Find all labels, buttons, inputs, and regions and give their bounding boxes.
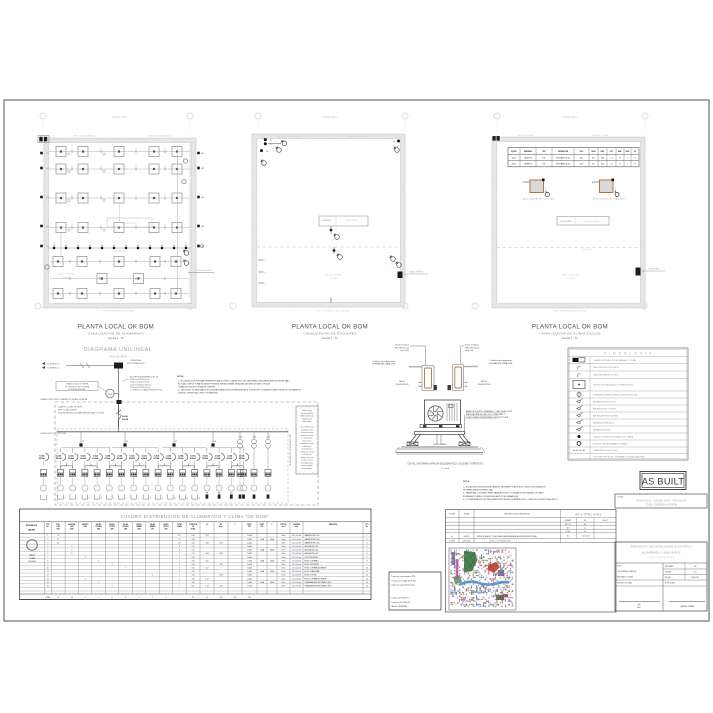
svg-text:6/10kA: 6/10kA <box>80 457 86 460</box>
svg-text:1.- EN LA EJECUCION DE ESTA OB: 1.- EN LA EJECUCION DE ESTA OBRA NO SE D… <box>463 486 546 489</box>
svg-text:ULT.REV: ULT.REV <box>449 540 455 542</box>
svg-text:A4: A4 <box>202 225 204 228</box>
svg-text:0,05: 0,05 <box>192 564 195 566</box>
svg-text:CAJA GRAL.: CAJA GRAL. <box>130 359 142 362</box>
svg-text:S / Clase: S / Clase <box>441 468 450 470</box>
svg-text:9: 9 <box>47 564 48 566</box>
svg-text:L3: L3 <box>47 197 49 199</box>
svg-text:Longitud: 13°41'26.43": Longitud: 13°41'26.43" <box>392 601 411 604</box>
svg-text:CAJA REG.: CAJA REG. <box>322 219 332 222</box>
svg-text:1x25 mm2 RZ1-K Neutro: 1x25 mm2 RZ1-K Neutro <box>130 383 151 386</box>
svg-text:UE-02 24.000 BTU/hr. Tipo cass: UE-02 24.000 BTU/hr. Tipo cassette <box>593 198 626 201</box>
svg-text:RED DE ALUMBRADO: RED DE ALUMBRADO <box>149 135 172 138</box>
svg-text:EQUIPO: EQUIPO <box>511 151 517 153</box>
svg-text:SALA DE VENTA: SALA DE VENTA <box>325 274 342 277</box>
svg-text:HUBBE: HUBBE <box>136 526 141 528</box>
svg-text:6: 6 <box>367 553 368 555</box>
svg-text:VOLT.: VOLT. <box>580 151 585 153</box>
svg-text:10: 10 <box>57 539 59 541</box>
svg-text:1x25 mm2 RZ1-K Tierra: 1x25 mm2 RZ1-K Tierra <box>130 386 151 389</box>
svg-text:11: 11 <box>47 571 49 573</box>
svg-text:ULT REV: ULT REV <box>449 514 456 516</box>
svg-text:1: 1 <box>179 586 180 588</box>
svg-text:s: s <box>265 272 266 274</box>
svg-text:1x2.5,1x2.5mm: 1x2.5,1x2.5mm <box>292 557 302 559</box>
svg-text:1x2.5,1x2.5mm: 1x2.5,1x2.5mm <box>292 539 302 541</box>
svg-text:6/10kA: 6/10kA <box>190 457 196 460</box>
svg-text:1: 1 <box>367 535 368 537</box>
svg-text:kWh: kWh <box>108 394 112 396</box>
svg-text:Cañerias de refrigeracion: Cañerias de refrigeracion <box>373 360 395 363</box>
svg-text:3,39: 3,39 <box>219 542 222 544</box>
svg-text:14.000 BTU/h: 14.000 BTU/h <box>478 384 492 386</box>
svg-text:12: 12 <box>366 575 368 577</box>
svg-text:ROTULO LETRERO EXTERIOR: ROTULO LETRERO EXTERIOR <box>305 578 328 580</box>
svg-text:CAJON INTERRUPTOR G/T.B: CAJON INTERRUPTOR G/T.B <box>593 374 620 377</box>
svg-text:UE-01 24.000 BTU/hr. Tipo cass: UE-01 24.000 BTU/hr. Tipo cassette <box>523 198 556 201</box>
svg-text:Buses metalica: Buses metalica <box>465 344 479 347</box>
svg-text:8: 8 <box>47 560 48 562</box>
svg-text:3: 3 <box>71 553 72 555</box>
svg-text:6/10kA: 6/10kA <box>166 457 172 460</box>
svg-text:RED DE ENCHUFES: RED DE ENCHUFES <box>348 136 369 138</box>
svg-text:RED DE CLIMA: RED DE CLIMA <box>517 134 533 137</box>
svg-text:TERMOSTATO: TERMOSTATO <box>560 220 573 223</box>
svg-text:s: s <box>334 299 335 301</box>
svg-text:1,05: 1,05 <box>205 560 208 562</box>
svg-text:6: 6 <box>47 553 48 555</box>
svg-text:INV: INV <box>543 157 545 159</box>
svg-text:CAJA DE CONEXION CERRADA TIPO: CAJA DE CONEXION CERRADA TIPO CHAPA <box>593 435 634 438</box>
svg-text:850: 850 <box>592 164 595 166</box>
svg-text:17,8: 17,8 <box>248 597 251 599</box>
svg-text:2,1: 2,1 <box>611 157 613 159</box>
svg-text:Ubicacion georreferenciada: Ubicacion georreferenciada <box>392 584 416 587</box>
svg-text:1: 1 <box>179 560 180 562</box>
svg-text:L2: L2 <box>270 144 272 146</box>
svg-text:SE DEBEN HACER SOBRE LOSA.: SE DEBEN HACER SOBRE LOSA. <box>463 489 493 492</box>
svg-text:11: 11 <box>186 498 188 500</box>
svg-text:10: 10 <box>47 568 49 570</box>
svg-text:NOTA: NOTA <box>463 480 469 483</box>
svg-text:10: 10 <box>179 542 181 544</box>
svg-text:2: 2 <box>398 146 399 148</box>
svg-text:6/10kA: 6/10kA <box>129 457 135 460</box>
svg-text:1x2.5,1x2.5mm: 1x2.5,1x2.5mm <box>292 564 302 566</box>
svg-text:04/05/22: 04/05/22 <box>463 536 469 538</box>
svg-text:1: 1 <box>98 582 99 584</box>
svg-text:de las indicadas.: de las indicadas. <box>301 468 313 470</box>
svg-text:1x2.5,1x2.5mm: 1x2.5,1x2.5mm <box>292 582 302 584</box>
svg-text:0,12: 0,12 <box>192 546 195 548</box>
svg-text:DESCRIPCION DE LA REVISION: DESCRIPCION DE LA REVISION <box>504 513 530 516</box>
svg-text:0,45: 0,45 <box>192 539 195 541</box>
svg-text:del uso de la: del uso de la <box>303 440 312 442</box>
svg-text:F: F <box>272 524 273 526</box>
svg-text:6/10kA: 6/10kA <box>39 457 45 460</box>
svg-text:1x2.5,1x2.5mm: 1x2.5,1x2.5mm <box>292 535 302 537</box>
svg-text:1x10kVA SO-4: 1x10kVA SO-4 <box>47 367 59 370</box>
svg-text:1: 1 <box>615 188 616 190</box>
svg-text:obra civil.: obra civil. <box>465 350 474 352</box>
svg-text:6/10kA: 6/10kA <box>105 457 111 460</box>
svg-text:CUADRO DISTRIBUCION DE ALUM: CUADRO DISTRIBUCION DE ALUMBRADO Y CLIMA… <box>121 514 270 519</box>
svg-text:7: 7 <box>367 557 368 559</box>
svg-text:CANALIZACION DE ENCHUFES: CANALIZACION DE ENCHUFES <box>303 331 356 335</box>
svg-text:2: 2 <box>136 166 137 168</box>
svg-text:Nv. P: Nv. P <box>566 527 569 529</box>
svg-text:REF. SUPERMERCADO ACANIA: REF. SUPERMERCADO ACANIA <box>554 310 587 313</box>
svg-text:6/10kA: 6/10kA <box>227 457 233 460</box>
svg-text:0,12: 0,12 <box>192 550 195 552</box>
svg-text:5: 5 <box>47 550 48 552</box>
svg-text:9: 9 <box>367 564 368 566</box>
svg-text:10: 10 <box>366 568 368 570</box>
svg-text:3: 3 <box>71 550 72 552</box>
svg-text:0,05: 0,05 <box>192 586 195 588</box>
svg-text:ARRANQUE PANTALLA: ARRANQUE PANTALLA <box>593 421 614 424</box>
svg-text:TECTROL/L por: TECTROL/L por <box>465 347 480 349</box>
svg-text:+ CONDUCTO OBRA PROVISTO XXL: + CONDUCTO OBRA PROVISTO XXL <box>130 389 163 392</box>
svg-text:Escala 1 : 50: Escala 1 : 50 <box>108 336 124 340</box>
svg-text:CENTRO CERTIFICADO POR CONTRAT: CENTRO CERTIFICADO POR CONTRATISTA. <box>178 392 218 395</box>
svg-text:3: 3 <box>71 546 72 548</box>
svg-text:0,12: 0,12 <box>192 553 195 555</box>
svg-text:el uso a seguida: el uso a seguida <box>302 465 313 467</box>
svg-text:REF. SUPERMERCADO ACANIA: REF. SUPERMERCADO ACANIA <box>317 310 350 313</box>
svg-text:3,39: 3,39 <box>219 564 222 566</box>
svg-text:6/10kA: 6/10kA <box>141 457 147 460</box>
svg-text:99: 99 <box>192 597 194 599</box>
svg-text:6/10kA: 6/10kA <box>202 457 208 460</box>
svg-text:1x2.5,1x2.5mm: 1x2.5,1x2.5mm <box>292 568 302 570</box>
svg-text:LOCAL COMERCIAL OK BOM: LOCAL COMERCIAL OK BOM <box>645 504 677 507</box>
svg-text:3: 3 <box>179 550 180 552</box>
svg-text:220V: 220V <box>580 164 583 166</box>
svg-text:L4: L4 <box>393 141 395 143</box>
svg-text:LUMIN.: LUMIN. <box>177 526 183 528</box>
svg-text:PASEO MAL: PASEO MAL <box>323 115 338 119</box>
svg-text:DIAGRAMA UNILINEAL: DIAGRAMA UNILINEAL <box>84 347 153 353</box>
svg-text:1x2.5,1x2.5mm: 1x2.5,1x2.5mm <box>292 586 302 588</box>
svg-text:3,39: 3,39 <box>219 586 222 588</box>
svg-text:Latitud: 37°58'48.78": Latitud: 37°58'48.78" <box>392 597 410 600</box>
svg-text:PLANTA LOCAL OK BOM: PLANTA LOCAL OK BOM <box>532 324 608 331</box>
svg-text:1: 1 <box>179 571 180 573</box>
svg-text:2: 2 <box>136 148 137 150</box>
svg-text:DESCRIPCION: DESCRIPCION <box>558 151 568 153</box>
svg-text:RED DE ENCHUFES: RED DE ENCHUFES <box>278 136 299 138</box>
svg-text:ESC. 1:50: ESC. 1:50 <box>565 524 572 526</box>
svg-text:0,05: 0,05 <box>192 568 195 570</box>
svg-text:2: 2 <box>136 195 137 197</box>
svg-text:ALMACEN: ALMACEN <box>582 248 592 251</box>
svg-text:ESPECIALISTA DE CALCULO CONFOR: ESPECIALISTA DE CALCULO CONFORME Y <box>466 413 506 416</box>
svg-text:13: 13 <box>366 578 368 580</box>
svg-text:0,05: 0,05 <box>192 557 195 559</box>
svg-text:UE-02: UE-02 <box>512 164 516 166</box>
svg-text:L2: L2 <box>47 168 49 170</box>
svg-text:PASEO MAL: PASEO MAL <box>113 115 128 119</box>
svg-text:2: 2 <box>101 224 102 226</box>
svg-text:2,27: 2,27 <box>205 568 208 570</box>
svg-text:10: 10 <box>57 535 59 537</box>
svg-text:ROTULO EXTERIOR: ROTULO EXTERIOR <box>305 564 320 566</box>
svg-text:1: 1 <box>98 597 99 599</box>
svg-text:EL DUAL COMPLE TOMA INSTALAR P: EL DUAL COMPLE TOMA INSTALAR PUESTA A TI… <box>178 383 271 386</box>
svg-text:24: 24 <box>71 597 73 599</box>
svg-text:PLANTA LOCAL OK BOM: PLANTA LOCAL OK BOM <box>78 324 154 331</box>
svg-text:modificacion y uso: modificacion y uso <box>301 457 314 459</box>
svg-text:s: s <box>265 283 266 285</box>
svg-text:de modificaciones: de modificaciones <box>301 462 313 464</box>
svg-text:CLIMA: CLIMA <box>29 557 35 560</box>
svg-text:FRIG.: FRIG. <box>601 151 605 153</box>
svg-text:10: 10 <box>57 542 59 544</box>
svg-text:5: 5 <box>112 597 113 599</box>
svg-text:3: 3 <box>367 542 368 544</box>
svg-text:P.A1.FA.3C.AL - V.S1A3B, D1-E1: P.A1.FA.3C.AL - V.S1A3B, D1-E1 - T.03.1-… <box>636 500 686 503</box>
svg-text:2: 2 <box>72 148 73 150</box>
svg-text:S I M B O L O G I A: S I M B O L O G I A <box>604 352 652 356</box>
svg-text:1: 1 <box>179 575 180 577</box>
svg-text:OTROS: OTROS <box>163 526 168 528</box>
svg-text:FORRAR EN OBRA CIVIL: FORRAR EN OBRA CIVIL <box>372 363 396 366</box>
svg-text:Altitud: TERMINAL: Altitud: TERMINAL <box>392 605 408 608</box>
svg-text:10: 10 <box>174 498 176 500</box>
svg-text:1x2.5,1x2.5mm: 1x2.5,1x2.5mm <box>292 553 302 555</box>
svg-text:1: 1 <box>85 557 86 559</box>
svg-text:1: 1 <box>546 188 547 190</box>
svg-text:16,8: 16,8 <box>219 597 222 599</box>
svg-text:S/E: S/E <box>584 524 586 526</box>
svg-text:TIENDA: TIENDA <box>566 277 574 280</box>
svg-text:ARRANQUE DE CONTROL: ARRANQUE DE CONTROL <box>593 407 617 410</box>
svg-text:3: 3 <box>338 251 339 253</box>
svg-text:9,5: 9,5 <box>619 164 621 166</box>
svg-text:UE-01: UE-01 <box>399 381 406 383</box>
svg-text:15: 15 <box>47 586 49 588</box>
svg-text:9,5: 9,5 <box>619 157 621 159</box>
svg-text:0,05: 0,05 <box>192 578 195 580</box>
svg-text:CANALIZACION DE ALUMBRADO: CANALIZACION DE ALUMBRADO <box>88 331 144 335</box>
svg-text:ALMACEN: ALMACEN <box>115 250 125 253</box>
svg-text:2: 2 <box>72 195 73 197</box>
svg-text:mm2: mm2 <box>295 526 299 528</box>
svg-text:1: 1 <box>179 564 180 566</box>
svg-text:2: 2 <box>139 597 140 599</box>
svg-text:1: 1 <box>336 230 337 232</box>
svg-text:CAJA GL LOCAL OK BOM: CAJA GL LOCAL OK BOM <box>58 406 82 409</box>
svg-text:11: 11 <box>366 571 368 573</box>
svg-text:4: 4 <box>47 546 48 548</box>
svg-text:UE-01: UE-01 <box>512 157 516 159</box>
svg-text:6/10kA: 6/10kA <box>68 457 74 460</box>
svg-text:6/10kA: 6/10kA <box>153 457 159 460</box>
svg-text:NOTA:: NOTA: <box>177 375 184 378</box>
svg-text:REF. TOTAL 40/4787: REF. TOTAL 40/4787 <box>58 409 78 412</box>
svg-text:TERMOSTATO: TERMOSTATO <box>648 268 660 271</box>
svg-text:6/10kA: 6/10kA <box>117 457 123 460</box>
svg-text:1x2.5,1x2.5mm: 1x2.5,1x2.5mm <box>292 550 302 552</box>
svg-text:6/10kA: 6/10kA <box>92 457 98 460</box>
svg-text:RED DE CLIMA: RED DE CLIMA <box>592 134 608 137</box>
svg-text:3,39: 3,39 <box>219 553 222 555</box>
svg-text:Nº DE SALTERIOS LED - TERMINAD: Nº DE SALTERIOS LED - TERMINADOS DE ADOS… <box>593 456 645 459</box>
svg-text:BOCA SOCKET ALUMBRADO NORMAL: BOCA SOCKET ALUMBRADO NORMAL <box>593 442 628 445</box>
svg-text:s: s <box>262 156 263 158</box>
svg-text:EMERG: EMERG <box>150 526 156 528</box>
svg-text:1.- EL DETALLE DE PUESTA A TI: 1.- EL DETALLE DE PUESTA A TIERRA MOSTRA… <box>178 380 291 383</box>
svg-text:8: 8 <box>367 560 368 562</box>
svg-text:CON EL DIAGRAMA UNIFILAR ESQUE: CON EL DIAGRAMA UNIFILAR ESQUEMATICO CAL… <box>407 463 483 466</box>
svg-text:14: 14 <box>366 582 368 584</box>
svg-text:3: 3 <box>47 542 48 544</box>
svg-text:2: 2 <box>165 195 166 197</box>
svg-text:TOMAS DEL EQUIPO ROTANTE VIGEN: TOMAS DEL EQUIPO ROTANTE VIGENTE. <box>178 386 216 389</box>
svg-text:7: 7 <box>47 557 48 559</box>
svg-text:ROZAMIENTO LARGO ORDEN INSULAR: ROZAMIENTO LARGO ORDEN INSULAR POR EL EM… <box>463 495 519 498</box>
svg-text:220V: 220V <box>580 157 583 159</box>
svg-text:A1: A1 <box>202 152 204 155</box>
svg-text:1/1: 1/1 <box>584 531 586 533</box>
svg-text:CUADRO DISTRIBUCION ALUMBRADO: CUADRO DISTRIBUCION ALUMBRADO Y CLIMA <box>593 359 636 362</box>
svg-text:E.P.S.: E.P.S. <box>617 566 622 568</box>
svg-text:CAJON INTERRUPTOR N/T.E: CAJON INTERRUPTOR N/T.E <box>593 366 619 369</box>
svg-text:HOMOLOGACION EMPRESA CONSTRUCT: HOMOLOGACION EMPRESA CONSTRUCTORA <box>466 416 509 419</box>
svg-text:L3: L3 <box>266 151 268 153</box>
svg-text:1x10kVA SO-4: 1x10kVA SO-4 <box>47 363 59 366</box>
svg-text:TIENDA: TIENDA <box>62 276 70 279</box>
svg-text:4x63A: 4x63A <box>122 415 128 418</box>
svg-text:2: 2 <box>125 597 126 599</box>
svg-text:1: 1 <box>152 597 153 599</box>
svg-text:2: 2 <box>72 166 73 168</box>
svg-text:2.- PARA FINAL LOS DEBE TENER: 2.- PARA FINAL LOS DEBE TENER HAGA-EN PI… <box>463 492 545 495</box>
svg-text:1x2.5,1x2.5mm: 1x2.5,1x2.5mm <box>292 560 302 562</box>
svg-text:1: 1 <box>112 564 113 566</box>
svg-text:0,05: 0,05 <box>192 571 195 573</box>
svg-text:7: 7 <box>138 498 139 500</box>
svg-text:3: 3 <box>179 546 180 548</box>
svg-text:1: 1 <box>112 586 113 588</box>
svg-text:0,05: 0,05 <box>192 560 195 562</box>
svg-text:14: 14 <box>47 582 49 584</box>
svg-text:L1: L1 <box>47 153 49 155</box>
svg-text:ROTULO LETRERO: ROTULO LETRERO <box>305 560 320 562</box>
svg-text:3.- LOS MATERIALES QUE REQUIER: 3.- LOS MATERIALES QUE REQUIEREN CERTIFI… <box>463 498 558 501</box>
svg-text:TECTROL/L por: TECTROL/L por <box>395 347 410 349</box>
svg-text:PROYECTO REAL: PROYECTO REAL <box>617 582 632 585</box>
svg-text:1: 1 <box>179 568 180 570</box>
svg-text:ARRANQUE DOBLE: ARRANQUE DOBLE <box>593 428 611 431</box>
svg-text:1: 1 <box>47 535 48 537</box>
svg-text:1: 1 <box>152 575 153 577</box>
svg-text:2: 2 <box>72 224 73 226</box>
svg-text:SALA DE VENTA: SALA DE VENTA <box>58 273 75 276</box>
svg-text:PHIL.: PHIL. <box>56 524 60 526</box>
svg-text:6/10kA: 6/10kA <box>178 457 184 460</box>
svg-text:2,48: 2,48 <box>205 542 208 544</box>
svg-text:LAMINA / FIRMA: LAMINA / FIRMA <box>680 605 694 608</box>
svg-text:Escala 1 : 50: Escala 1 : 50 <box>322 336 338 340</box>
svg-text:ARRANQUE DE ESCALERA: ARRANQUE DE ESCALERA <box>593 414 618 417</box>
svg-text:6/10kA: 6/10kA <box>214 457 220 460</box>
svg-text:1x2.5,1x2.5mm: 1x2.5,1x2.5mm <box>292 575 302 577</box>
svg-text:13: 13 <box>47 578 49 580</box>
svg-text:18,6: 18,6 <box>233 597 236 599</box>
svg-text:2: 2 <box>47 539 48 541</box>
svg-text:1:50: 1:50 <box>693 572 696 574</box>
svg-text:PROT.: PROT. <box>260 524 265 526</box>
svg-text:2: 2 <box>165 148 166 150</box>
svg-text:REVISADO: P.DIAZ: REVISADO: P.DIAZ <box>617 576 634 579</box>
svg-text:L4: L4 <box>47 226 49 228</box>
svg-text:TRAMO A CALLE A TIERRA: TRAMO A CALLE A TIERRA <box>66 383 90 386</box>
svg-text:32-1-IPEL-E01: 32-1-IPEL-E01 <box>575 511 602 516</box>
svg-text:CTO.: CTO. <box>365 524 369 526</box>
svg-text:0,05: 0,05 <box>192 575 195 577</box>
svg-text:1x2.5,1x2.5mm: 1x2.5,1x2.5mm <box>292 546 302 548</box>
svg-text:CONTROL REMOTO: CONTROL REMOTO <box>583 221 601 223</box>
svg-text:PROYECTO DE INSTALACION ELECTR: PROYECTO DE INSTALACION ELECTRICA <box>631 545 691 549</box>
svg-text:L1: L1 <box>270 140 272 142</box>
svg-text:SALA DE VENTA: SALA DE VENTA <box>562 274 579 277</box>
svg-text:OCA OK BOM: OCA OK BOM <box>109 355 128 359</box>
svg-text:POTENCIA GWh T25 AMPLIACION WA: POTENCIA GWh T25 AMPLIACION WALL (T5,5kV… <box>58 412 104 415</box>
svg-text:2: 2 <box>101 166 102 168</box>
svg-text:1x2.5,1x2.5mm: 1x2.5,1x2.5mm <box>292 571 302 573</box>
svg-text:4: 4 <box>85 597 86 599</box>
svg-text:BASE DE EQUIPOS DISEÑADO Y CA: BASE DE EQUIPOS DISEÑADO Y CALCULADO POR <box>466 410 513 413</box>
svg-text:TOMACORRIENTE: TOMACORRIENTE <box>409 271 425 274</box>
svg-text:s: s <box>265 260 266 262</box>
svg-text:1,81: 1,81 <box>205 535 208 537</box>
svg-text:6/10kA: 6/10kA <box>56 457 62 460</box>
svg-text:04.05.2022: 04.05.2022 <box>463 540 471 542</box>
svg-text:BARRA REPARTO COLECTORA: BARRA REPARTO COLECTORA <box>41 432 67 435</box>
svg-text:1: 1 <box>179 582 180 584</box>
svg-text:2,1: 2,1 <box>611 164 613 166</box>
svg-text:Proyeccion Google Earth S/e.: Proyeccion Google Earth S/e. <box>392 579 417 582</box>
svg-text:PROT.: PROT. <box>247 524 252 526</box>
svg-text:TIENDA: TIENDA <box>329 277 337 280</box>
svg-text:2: 2 <box>333 240 334 242</box>
svg-text:PASEO MAL: PASEO MAL <box>563 115 578 119</box>
svg-text:2: 2 <box>165 166 166 168</box>
svg-text:1x2.5,1x2.5mm: 1x2.5,1x2.5mm <box>292 542 302 544</box>
svg-text:5: 5 <box>367 550 368 552</box>
svg-text:CANALIZACION EMT 20mm: CANALIZACION EMT 20mm <box>593 449 618 452</box>
svg-text:10: 10 <box>179 535 181 537</box>
svg-text:A TIERRA GENERAL: A TIERRA GENERAL <box>68 388 85 391</box>
svg-text:UE-02: UE-02 <box>481 381 488 383</box>
svg-text:Buses metalica: Buses metalica <box>395 344 409 347</box>
svg-text:Datos de coordenadas UTM: Datos de coordenadas UTM <box>392 575 416 578</box>
svg-text:6: 6 <box>126 498 127 500</box>
svg-text:24.000 BTU/h: 24.000 BTU/h <box>396 384 410 386</box>
svg-text:1: 1 <box>179 578 180 580</box>
svg-text:Pliego Tecnico: Pliego Tecnico <box>302 410 312 412</box>
svg-text:PLANTA LOCAL OK BOM: PLANTA LOCAL OK BOM <box>292 324 368 331</box>
svg-text:ROTULO TOTEM: ROTULO TOTEM <box>305 575 318 577</box>
svg-text:1: 1 <box>125 568 126 570</box>
svg-text:TECHUMBRE: TECHUMBRE <box>433 444 447 446</box>
svg-text:6000: 6000 <box>601 164 604 166</box>
svg-text:01: 01 <box>584 527 586 529</box>
svg-text:6/10kA: 6/10kA <box>122 418 129 421</box>
svg-text:MOSTRADOR: MOSTRADOR <box>346 219 358 222</box>
